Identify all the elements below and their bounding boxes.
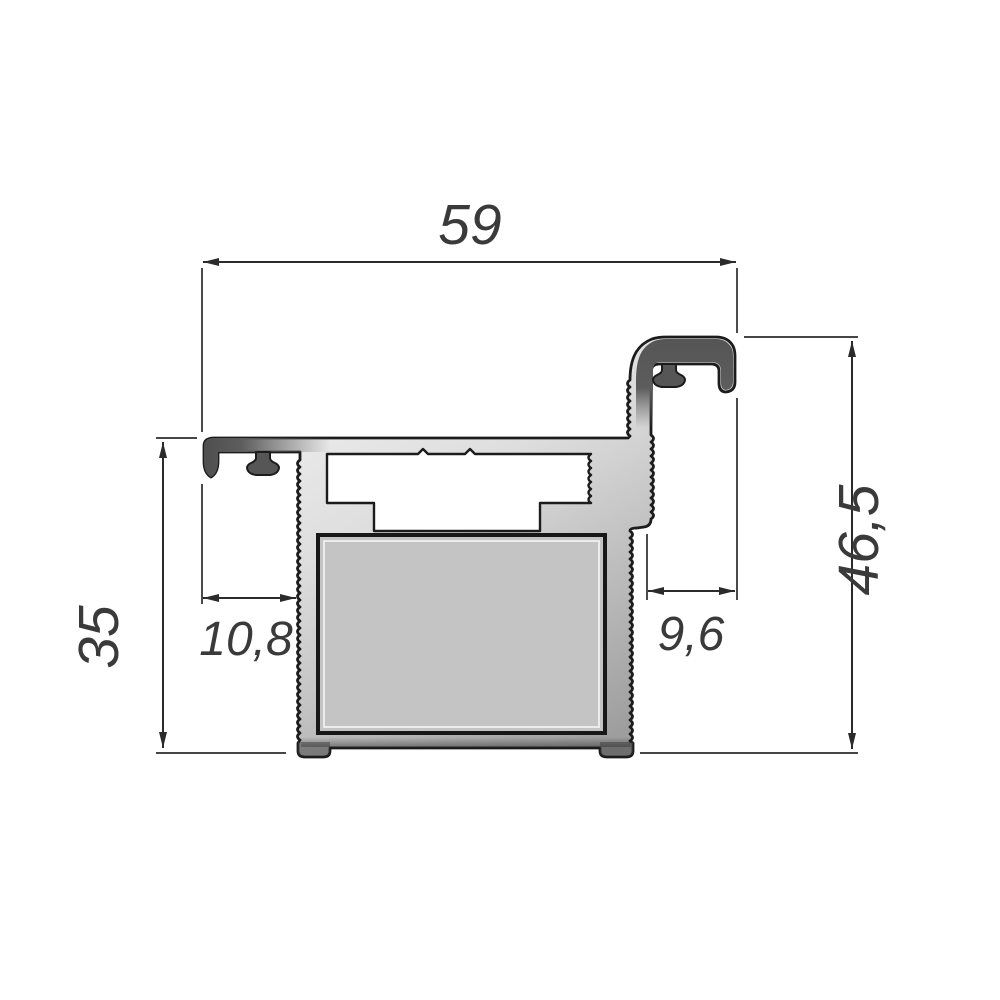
dim-label-gap-right: 9,6 (658, 608, 725, 661)
drawing-canvas: 59 46,5 35 10,8 (0, 0, 1000, 1000)
arrowhead (159, 732, 167, 748)
right-mushroom-rib (653, 364, 685, 387)
arrowhead (848, 733, 856, 749)
left-mushroom-rib (247, 452, 279, 475)
dim-height-35: 35 (67, 438, 286, 753)
dim-label-height-left: 35 (67, 605, 131, 669)
arrowhead (159, 442, 167, 458)
arrowhead (648, 587, 664, 595)
arrowhead (203, 594, 219, 602)
dim-label-width: 59 (438, 193, 501, 257)
arrowhead (848, 341, 856, 357)
dim-gap-10-8: 10,8 (199, 594, 296, 666)
profile-body (204, 337, 735, 757)
dim-label-gap-left: 10,8 (199, 613, 293, 666)
arrowhead (203, 258, 219, 266)
right-foot-shade (600, 742, 633, 756)
arrowhead (280, 594, 296, 602)
left-foot-shade (298, 742, 330, 756)
dim-height-46-5: 46,5 (640, 337, 891, 753)
bottom-wall-shade (301, 737, 631, 747)
dim-label-height-right: 46,5 (827, 484, 891, 595)
infill-panel (318, 535, 605, 733)
arrowhead (720, 258, 736, 266)
dim-gap-9-6: 9,6 (647, 534, 735, 661)
profile-drawing: 59 46,5 35 10,8 (0, 0, 1000, 1000)
arrowhead (719, 587, 735, 595)
